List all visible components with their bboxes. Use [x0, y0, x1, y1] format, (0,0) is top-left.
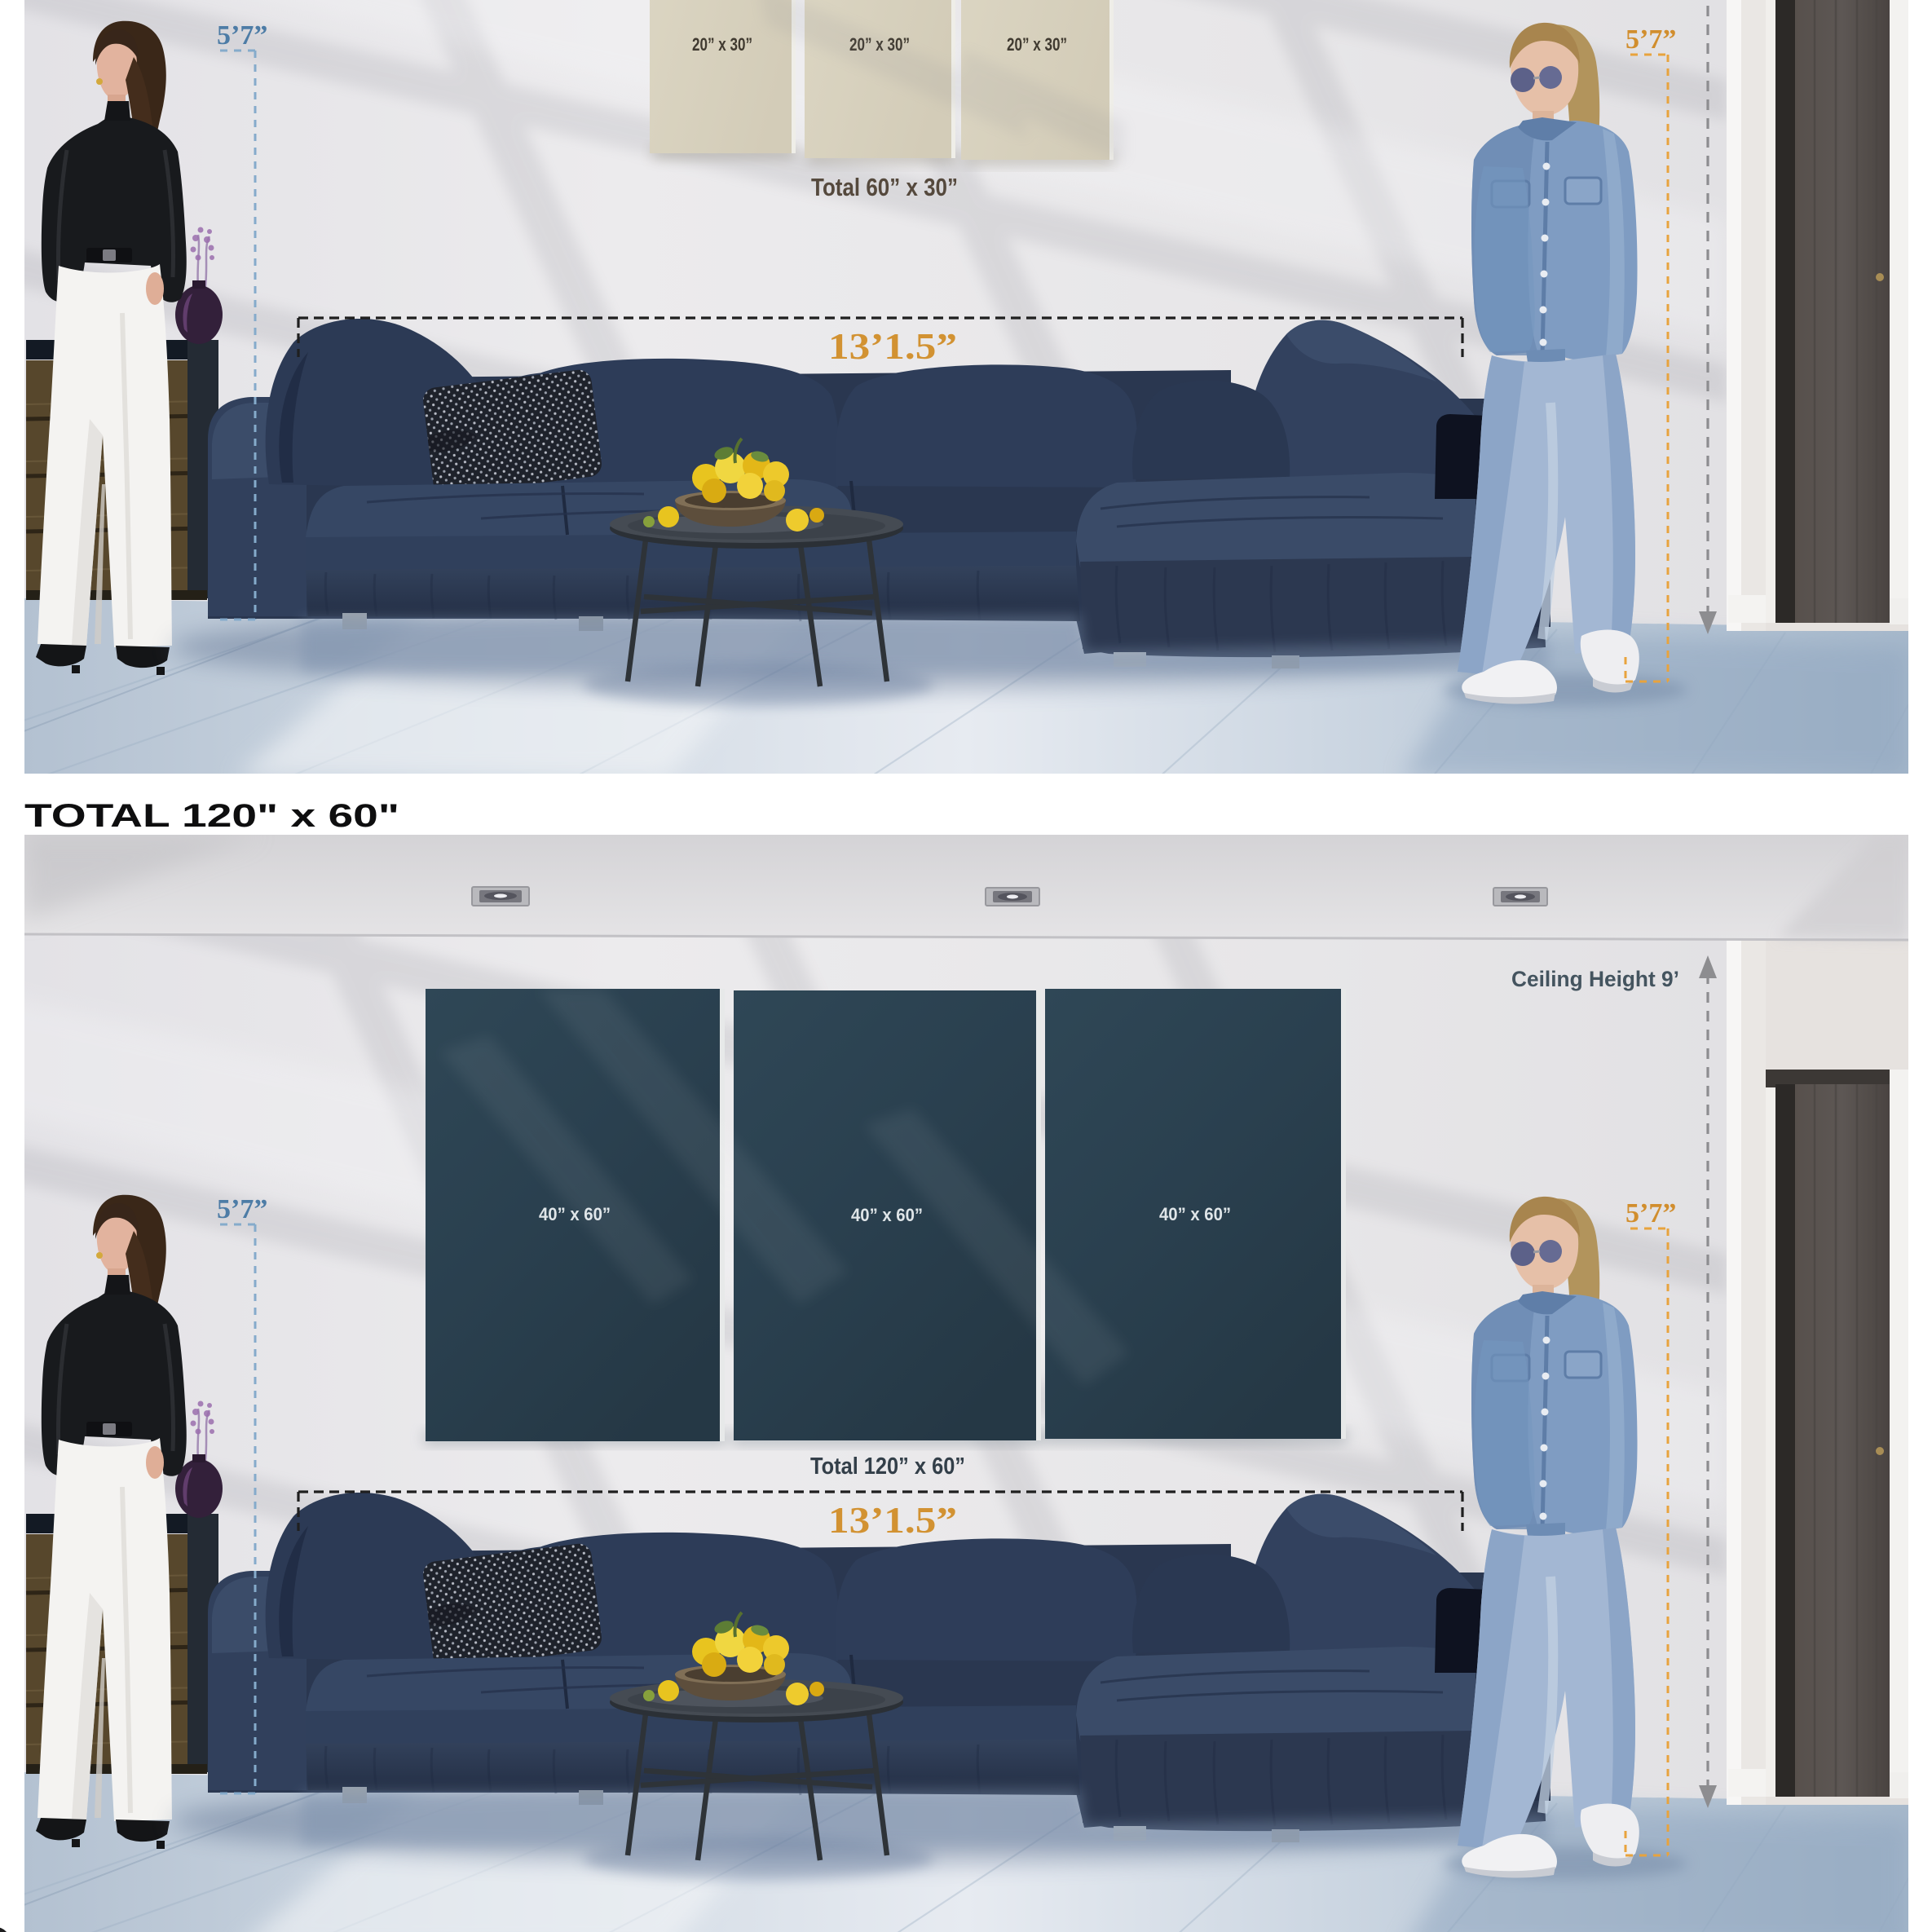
svg-text:Ceiling Height 9’: Ceiling Height 9’	[1511, 967, 1679, 991]
svg-text:40” x 60”: 40” x 60”	[1159, 1204, 1231, 1224]
svg-text:40” x 60”: 40” x 60”	[851, 1205, 923, 1225]
svg-text:TOTAL 120" x 60": TOTAL 120" x 60"	[24, 798, 399, 834]
svg-text:20” x 30”: 20” x 30”	[1007, 34, 1067, 55]
svg-text:Total 120” x 60”: Total 120” x 60”	[810, 1453, 965, 1480]
svg-text:Total 60” x 30”: Total 60” x 30”	[811, 173, 958, 201]
svg-text:20” x 30”: 20” x 30”	[692, 34, 752, 55]
